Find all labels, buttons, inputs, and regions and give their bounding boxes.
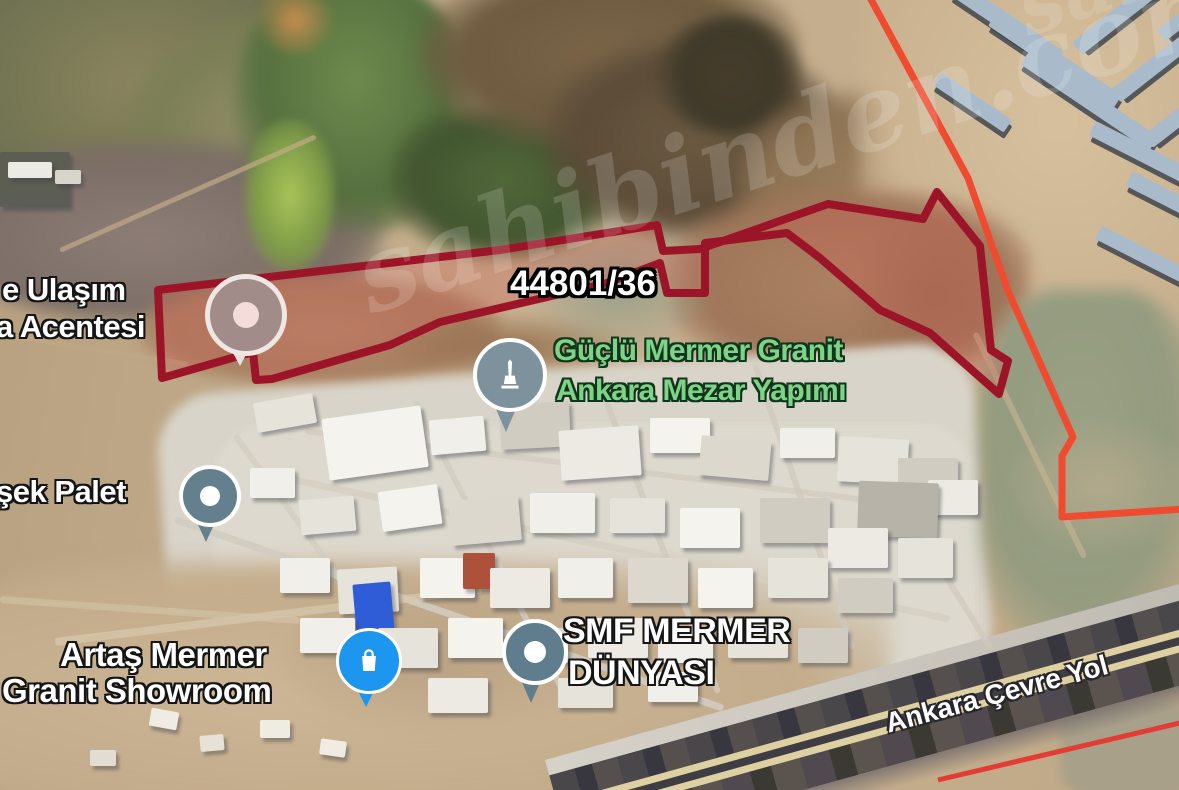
building xyxy=(319,738,347,757)
building xyxy=(798,628,848,663)
poi-label-artas-line1[interactable]: Artaş Mermer xyxy=(60,636,267,674)
building xyxy=(378,484,443,532)
building xyxy=(250,468,295,498)
warehouse-building xyxy=(1072,0,1172,55)
warehouse-building xyxy=(1125,171,1179,244)
building xyxy=(650,418,710,453)
shopping-bag-icon xyxy=(354,646,384,676)
building xyxy=(768,558,828,598)
poi-label-palet[interactable]: şek Palet xyxy=(0,474,126,510)
poi-label-guclu-line2[interactable]: Ankara Mezar Yapımı xyxy=(556,374,846,408)
palet-teardrop-pin[interactable] xyxy=(179,465,241,527)
warehouse-building xyxy=(1143,58,1179,148)
building xyxy=(698,568,753,608)
road-segment xyxy=(877,469,993,650)
poi-label-artas-line2[interactable]: Granit Showroom xyxy=(2,672,271,710)
building xyxy=(490,568,550,608)
warehouse-building xyxy=(1157,0,1179,41)
poi-label-guclu-line1[interactable]: Güçlü Mermer Granit xyxy=(554,334,843,368)
warehouse-building xyxy=(951,0,1064,65)
terrain-scrub xyxy=(1010,420,1179,550)
poi-label-ulasim-line2[interactable]: a Acentesi xyxy=(0,309,145,345)
poi-label-ulasim-line1[interactable]: e Ulaşım xyxy=(2,272,126,308)
warehouse-building xyxy=(1095,226,1179,294)
monument-icon xyxy=(492,357,528,393)
building xyxy=(448,618,503,658)
warehouse-building xyxy=(988,12,1122,110)
smf-teardrop-pin[interactable] xyxy=(502,619,568,685)
guclu-monument-pin[interactable] xyxy=(473,338,547,412)
building xyxy=(780,428,835,458)
warehouse-building xyxy=(1111,10,1179,103)
building xyxy=(0,152,70,207)
terrain-ridge xyxy=(420,0,800,150)
warehouse-building xyxy=(933,73,1012,133)
building xyxy=(760,498,830,543)
terrain-field xyxy=(140,275,500,385)
building xyxy=(448,495,522,546)
terrain-vegetation xyxy=(245,120,335,270)
ulasim-circle-dot-pin[interactable] xyxy=(205,274,287,356)
terrain-vegetation xyxy=(235,0,475,230)
satellite-map[interactable]: sahibinden.com sahibinden.com e Ulaşım a… xyxy=(0,0,1179,790)
terrain-ridge xyxy=(735,90,1015,290)
terrain-ridge xyxy=(545,40,845,240)
watermark: sahibinden.com xyxy=(340,0,1179,338)
building xyxy=(199,734,224,752)
watermark: sahibinden.com xyxy=(1005,0,1179,54)
building xyxy=(8,162,52,178)
building xyxy=(628,558,688,603)
road-segment xyxy=(233,433,350,590)
artas-shopping-pin[interactable] xyxy=(336,628,402,694)
parcel-number-label: 44801/36 xyxy=(510,264,656,304)
terrain-hill xyxy=(0,0,370,260)
building xyxy=(610,498,665,533)
road-segment xyxy=(972,332,1087,559)
building xyxy=(828,528,888,568)
building xyxy=(149,708,180,731)
terrain-vegetation xyxy=(390,100,620,260)
pin-center-dot xyxy=(233,302,259,328)
building xyxy=(898,538,953,578)
building xyxy=(558,425,641,480)
warehouse-building xyxy=(1020,50,1158,151)
terrain-hill xyxy=(120,10,450,260)
poi-label-smf-line1[interactable]: SMF MERMER xyxy=(563,612,790,651)
building xyxy=(463,553,495,589)
terrain-field xyxy=(860,0,1179,350)
pin-center-dot xyxy=(200,486,220,506)
building xyxy=(838,578,893,613)
building xyxy=(55,170,81,184)
building xyxy=(928,480,978,515)
building xyxy=(558,558,613,598)
terrain-ridge xyxy=(655,15,805,135)
terrain-patch xyxy=(255,0,335,55)
building xyxy=(420,558,475,598)
pin-center-dot xyxy=(524,641,546,663)
building xyxy=(680,508,740,548)
building xyxy=(837,436,909,485)
building xyxy=(857,481,939,539)
road-segment xyxy=(59,134,317,252)
building xyxy=(90,750,116,766)
building xyxy=(698,435,771,481)
road-segment xyxy=(0,596,300,624)
building xyxy=(428,678,488,713)
building xyxy=(321,405,429,480)
building xyxy=(260,720,290,738)
building xyxy=(280,558,330,593)
road-segment xyxy=(254,468,950,622)
building xyxy=(898,458,958,498)
terrain-field xyxy=(850,220,1020,370)
building xyxy=(429,416,487,456)
building xyxy=(337,566,399,614)
building xyxy=(253,393,317,433)
warehouse-building xyxy=(1089,121,1179,199)
building xyxy=(530,493,595,533)
zone-boundary-line xyxy=(868,0,1179,517)
building xyxy=(299,496,357,536)
poi-label-smf-line2[interactable]: DÜNYASI xyxy=(568,654,714,693)
road-segment xyxy=(305,428,901,507)
